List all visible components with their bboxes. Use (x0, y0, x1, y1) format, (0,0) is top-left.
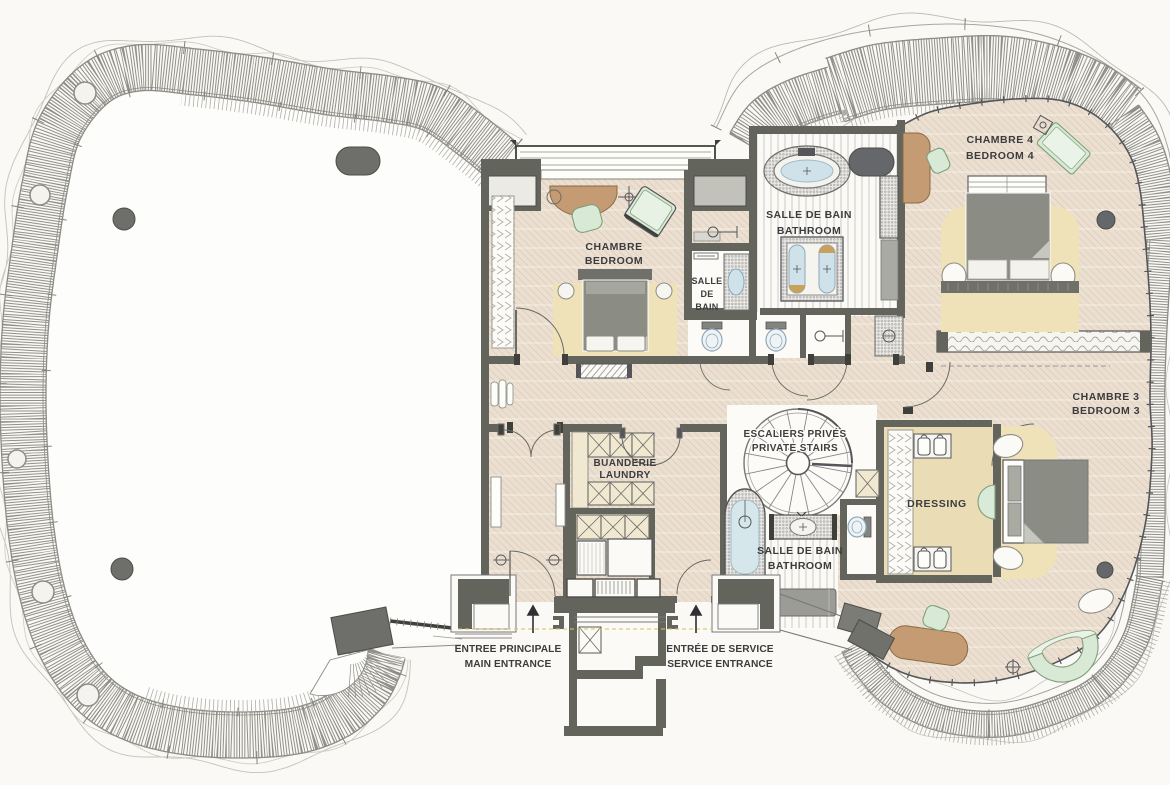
svg-text:MAIN ENTRANCE: MAIN ENTRANCE (465, 659, 552, 670)
svg-text:BATHROOM: BATHROOM (777, 225, 841, 237)
svg-text:DRESSING: DRESSING (907, 498, 967, 510)
svg-text:LAUNDRY: LAUNDRY (599, 470, 650, 481)
svg-text:SALLE: SALLE (691, 276, 722, 286)
svg-text:BUANDERIE: BUANDERIE (593, 458, 656, 469)
svg-text:CHAMBRE: CHAMBRE (585, 241, 642, 253)
svg-text:CHAMBRE 3: CHAMBRE 3 (1073, 391, 1140, 403)
svg-text:BATHROOM: BATHROOM (768, 560, 832, 572)
svg-text:BEDROOM: BEDROOM (585, 255, 643, 267)
svg-text:BAIN: BAIN (695, 302, 718, 312)
svg-text:ESCALIERS PRIVÉS: ESCALIERS PRIVÉS (743, 427, 846, 440)
svg-text:DE: DE (700, 289, 713, 299)
svg-text:SALLE DE BAIN: SALLE DE BAIN (757, 545, 843, 557)
svg-text:SERVICE ENTRANCE: SERVICE ENTRANCE (667, 659, 773, 670)
svg-text:BEDROOM 3: BEDROOM 3 (1072, 405, 1140, 417)
svg-text:ENTREE PRINCIPALE: ENTREE PRINCIPALE (455, 644, 562, 655)
svg-text:SALLE DE BAIN: SALLE DE BAIN (766, 209, 852, 221)
svg-text:BEDROOM 4: BEDROOM 4 (966, 150, 1034, 162)
svg-text:PRIVATE STAIRS: PRIVATE STAIRS (752, 443, 838, 454)
svg-text:CHAMBRE 4: CHAMBRE 4 (967, 134, 1034, 146)
svg-text:ENTRÉE DE SERVICE: ENTRÉE DE SERVICE (666, 642, 773, 655)
